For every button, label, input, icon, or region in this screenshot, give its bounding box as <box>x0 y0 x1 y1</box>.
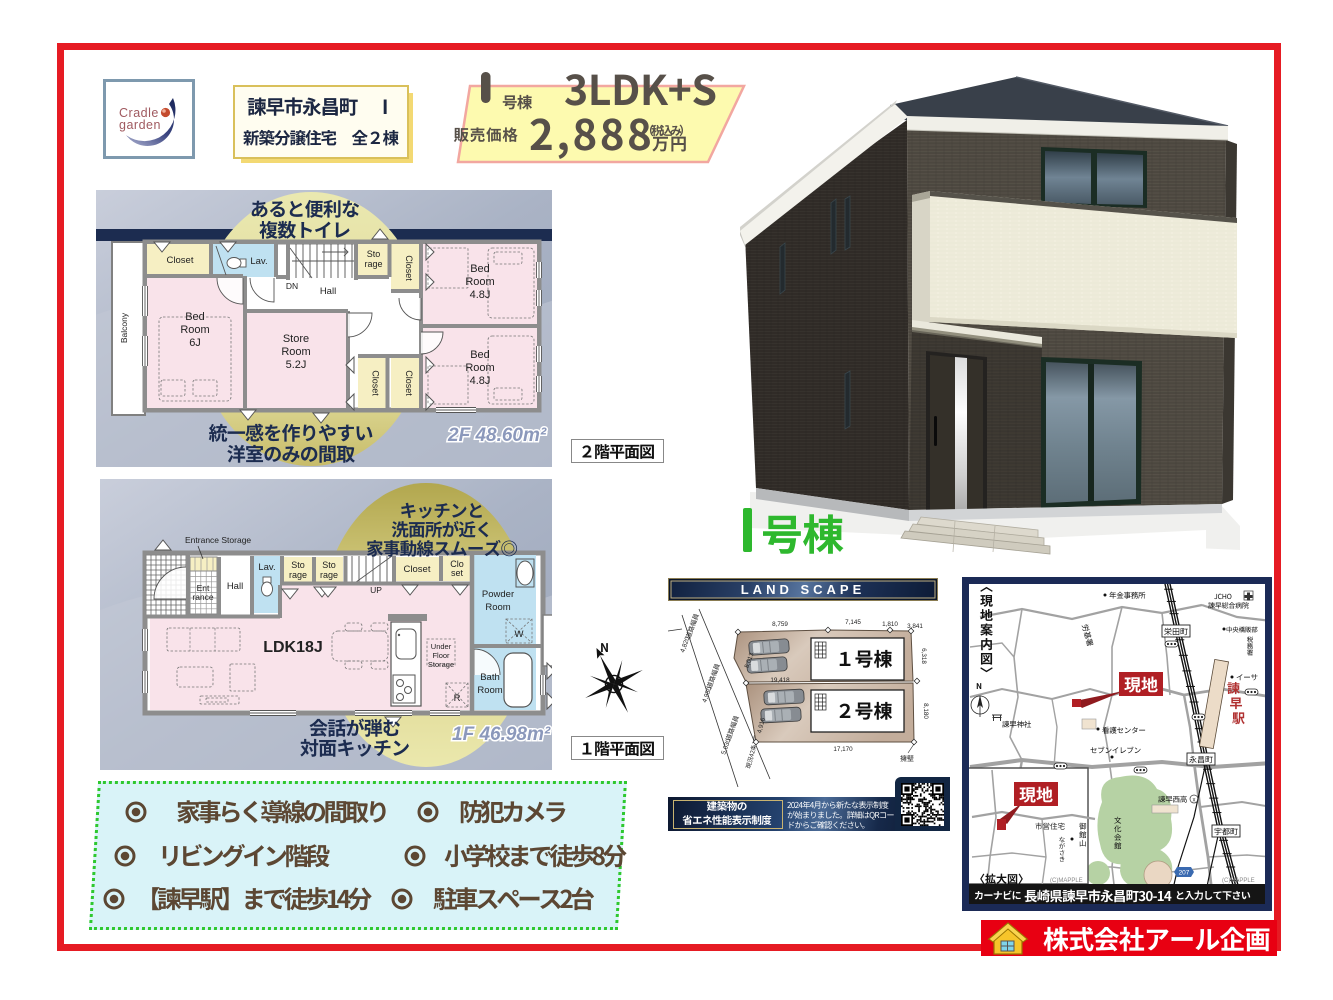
svg-text:8,180: 8,180 <box>922 703 929 719</box>
svg-text:rage: rage <box>320 570 338 580</box>
svg-text:Store: Store <box>283 333 309 345</box>
svg-text:19,418: 19,418 <box>770 677 790 684</box>
svg-text:(C)MAPPLE: (C)MAPPLE <box>1222 878 1255 884</box>
svg-text:Lav.: Lav. <box>258 562 275 573</box>
svg-text:rage: rage <box>364 259 382 269</box>
svg-text:LDK18J: LDK18J <box>263 639 323 656</box>
svg-text:Room: Room <box>180 324 209 336</box>
svg-text:Hall: Hall <box>320 286 336 297</box>
svg-text:Entrance Storage: Entrance Storage <box>185 535 251 545</box>
svg-text:Bed: Bed <box>470 263 490 275</box>
svg-text:DN: DN <box>286 281 298 291</box>
svg-text:rance: rance <box>192 592 214 602</box>
svg-text:2F 48.60m²: 2F 48.60m² <box>447 425 547 446</box>
svg-text:8,759: 8,759 <box>772 621 788 628</box>
svg-text:Powder: Powder <box>482 589 514 600</box>
svg-text:Bath: Bath <box>480 672 500 683</box>
svg-text:R: R <box>454 693 461 704</box>
svg-text:(C)MAPPLE: (C)MAPPLE <box>1050 878 1083 884</box>
svg-text:Room: Room <box>281 346 310 358</box>
svg-text:Lav.: Lav. <box>250 256 267 267</box>
svg-text:rage: rage <box>289 570 307 580</box>
svg-text:set: set <box>451 568 464 578</box>
svg-text:17,170: 17,170 <box>833 746 853 753</box>
svg-text:Room: Room <box>465 276 494 288</box>
svg-text:5.2J: 5.2J <box>286 359 307 371</box>
svg-text:Sto: Sto <box>291 560 305 570</box>
svg-text:Sto: Sto <box>322 560 336 570</box>
svg-text:Balcony: Balcony <box>119 312 129 343</box>
svg-text:1F 46.98m²: 1F 46.98m² <box>452 724 551 745</box>
svg-text:Room: Room <box>465 362 494 374</box>
svg-text:4.8J: 4.8J <box>470 375 491 387</box>
svg-text:UP: UP <box>370 585 382 595</box>
svg-text:Bed: Bed <box>185 311 205 323</box>
svg-text:garden: garden <box>119 118 161 132</box>
svg-text:Room: Room <box>485 602 510 613</box>
svg-text:3,841: 3,841 <box>907 623 923 630</box>
svg-text:Floor: Floor <box>432 651 450 660</box>
svg-text:Closet: Closet <box>404 564 431 575</box>
svg-text:6J: 6J <box>189 337 201 349</box>
svg-text:6,318: 6,318 <box>920 648 927 664</box>
svg-text:Closet: Closet <box>404 370 414 396</box>
svg-text:Bed: Bed <box>470 349 490 361</box>
svg-text:Closet: Closet <box>371 370 381 396</box>
svg-text:4.8J: 4.8J <box>470 289 491 301</box>
svg-text:Room: Room <box>477 685 502 696</box>
svg-text:Storage: Storage <box>428 660 454 669</box>
svg-text:Closet: Closet <box>404 255 414 281</box>
svg-text:Hall: Hall <box>227 581 243 592</box>
svg-text:207: 207 <box>1179 870 1190 877</box>
svg-text:Sto: Sto <box>367 249 381 259</box>
svg-text:7,145: 7,145 <box>845 619 861 626</box>
svg-text:Under: Under <box>431 642 452 651</box>
svg-text:x: x <box>1193 798 1196 804</box>
svg-text:Closet: Closet <box>167 255 194 266</box>
svg-text:W: W <box>515 629 524 640</box>
